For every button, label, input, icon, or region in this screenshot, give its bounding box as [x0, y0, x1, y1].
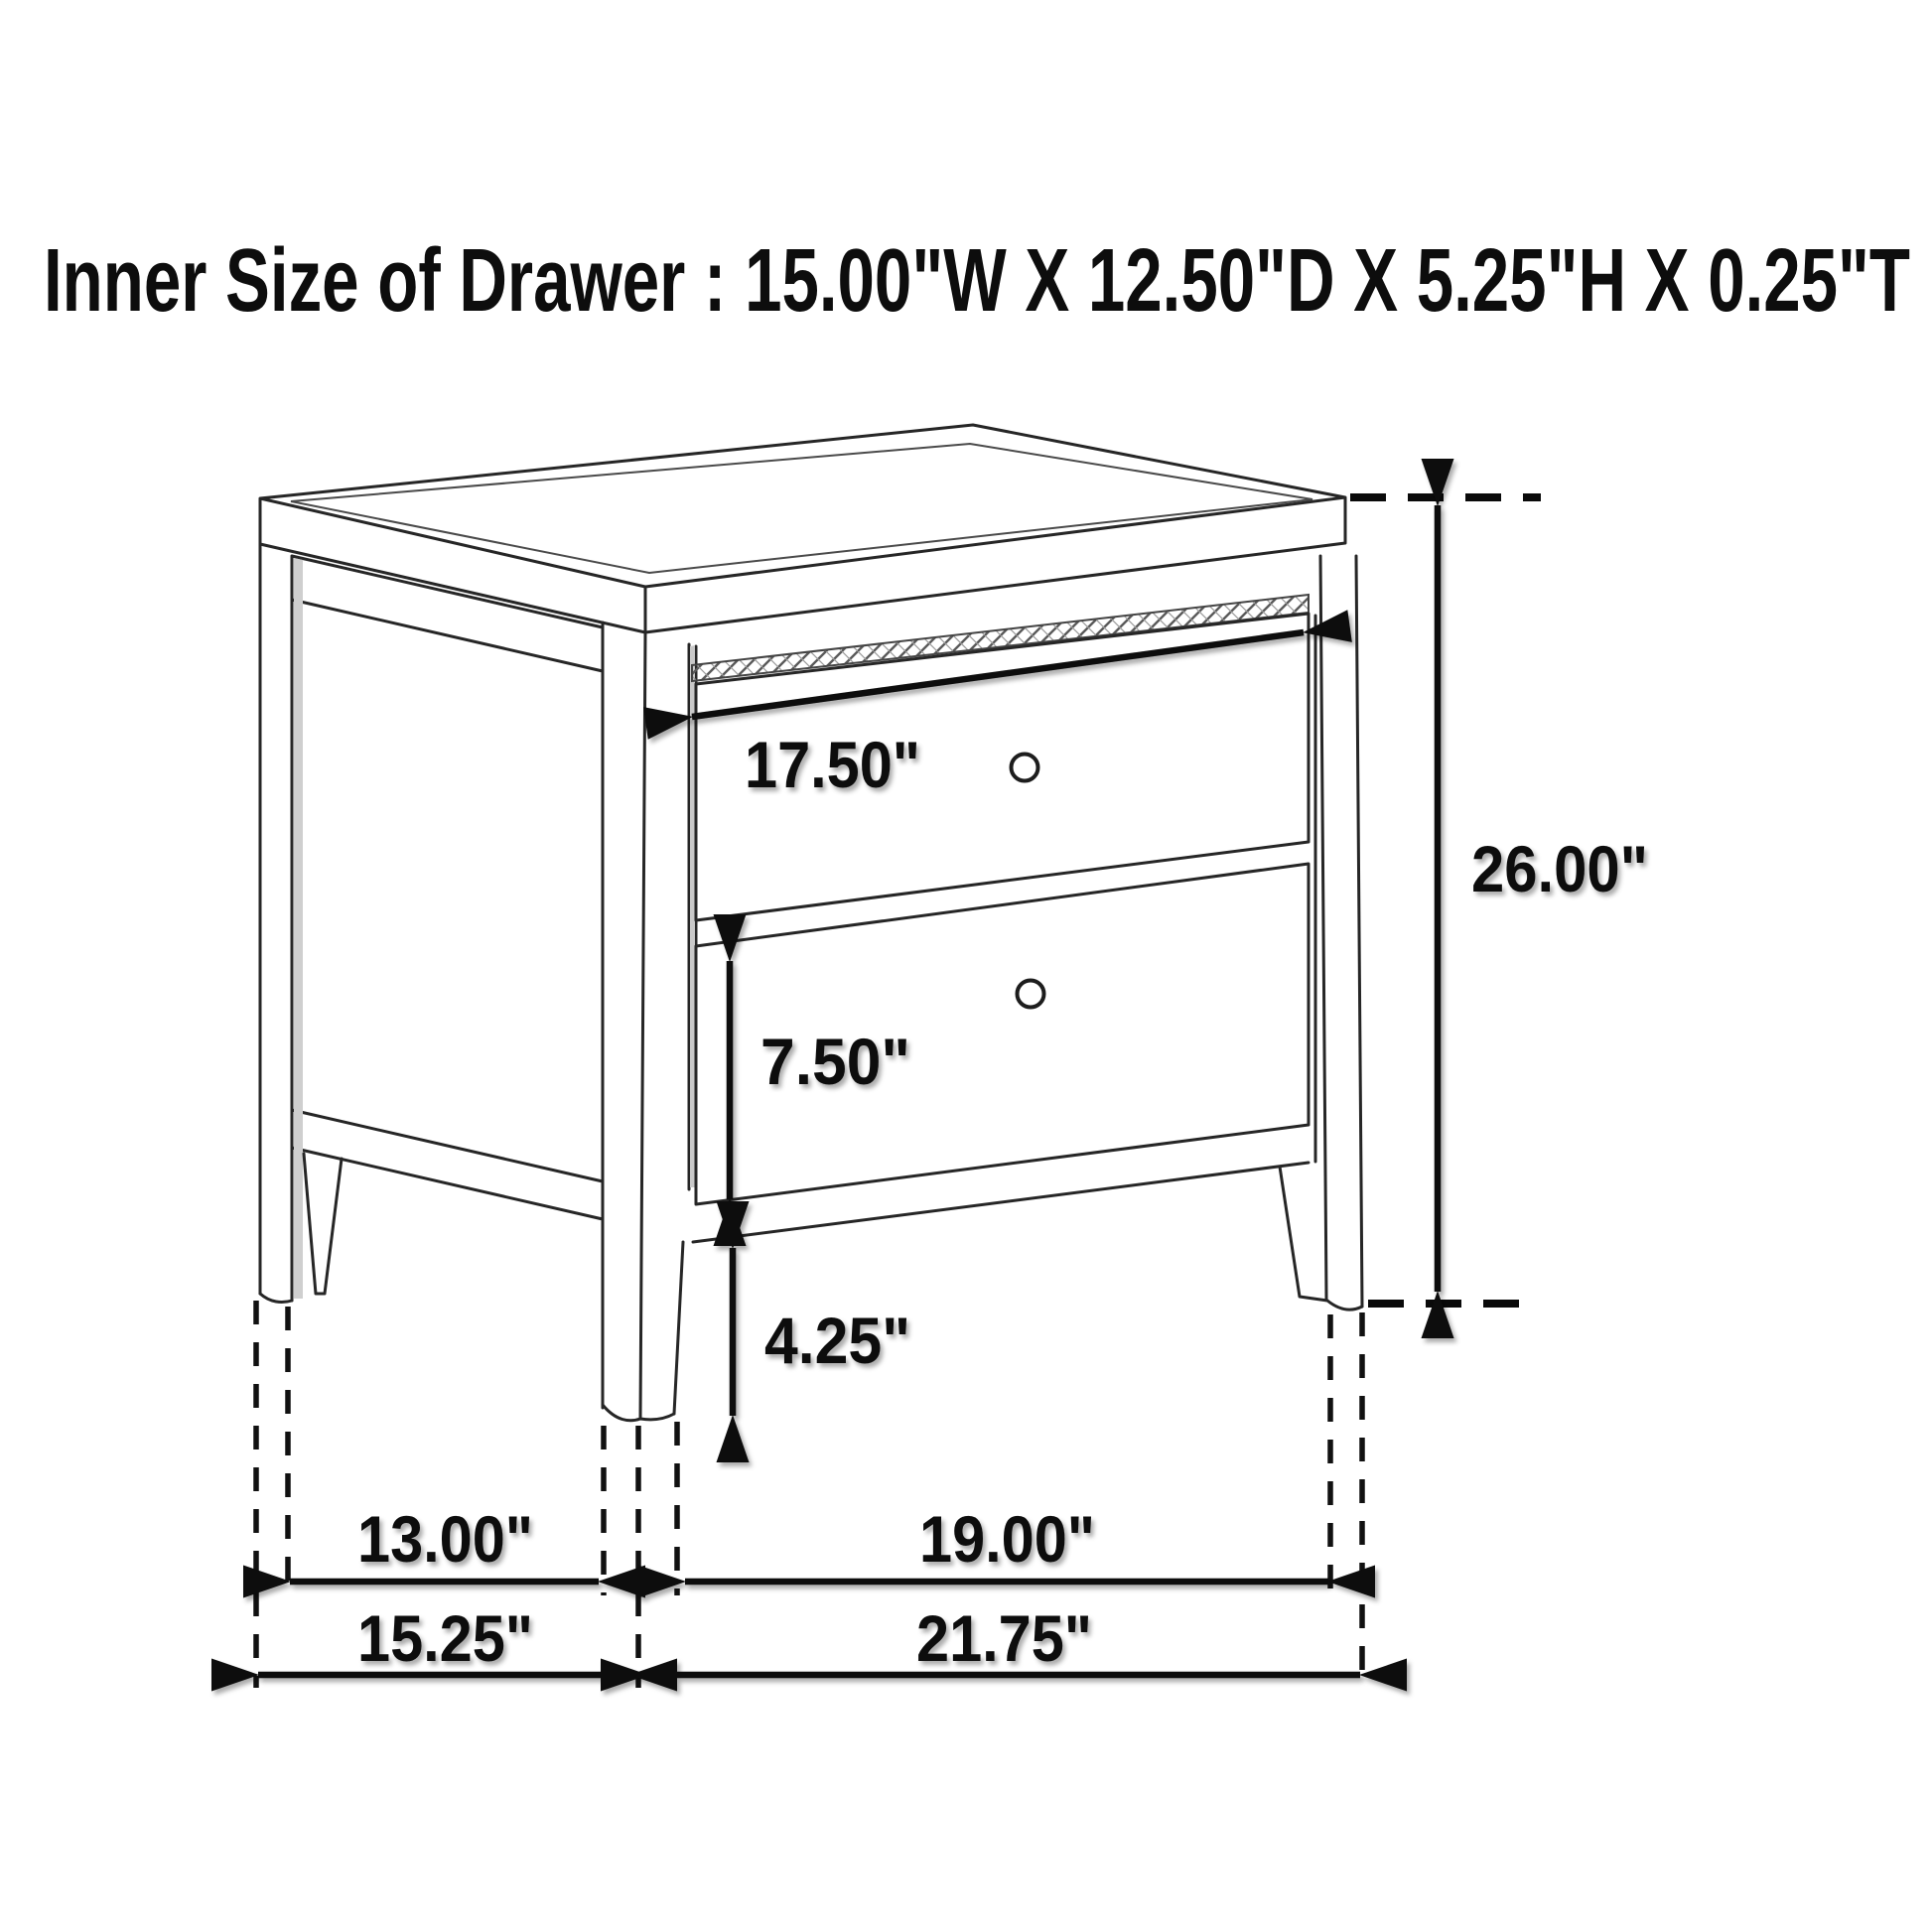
label-leg-height: 4.25": [764, 1304, 910, 1377]
dimension-diagram: Inner Size of Drawer : 15.00"W X 12.50"D…: [0, 0, 1932, 1932]
label-drawer-width: 17.50": [745, 728, 920, 801]
front-frame: [640, 556, 1362, 1418]
label-side-leg-spacing: 13.00": [357, 1502, 533, 1576]
knob-bottom-drawer: [1018, 981, 1044, 1008]
side-panel: [260, 544, 603, 1408]
trim-strip: [692, 595, 1309, 681]
diagram-title: Inner Size of Drawer : 15.00"W X 12.50"D…: [44, 231, 1910, 331]
label-overall-depth: 15.25": [357, 1601, 533, 1675]
label-drawer-height: 7.50": [760, 1025, 910, 1098]
label-overall-height: 26.00": [1471, 832, 1648, 905]
leg-front-right: [1280, 1167, 1362, 1310]
dimension-annotations: 17.50" 26.00" 7.50" 4.25" 13.00" 19.00" …: [258, 505, 1648, 1675]
label-front-leg-spacing: 19.00": [919, 1502, 1095, 1576]
drawer-gap-shade: [690, 645, 695, 1187]
leg-front-left: [603, 1242, 683, 1421]
knob-top-drawer: [1012, 755, 1038, 781]
nightstand-drawing: [260, 425, 1362, 1421]
side-stile-shade: [294, 558, 303, 1299]
tabletop-inset-edge: [291, 444, 1312, 573]
label-overall-width: 21.75": [916, 1601, 1092, 1675]
